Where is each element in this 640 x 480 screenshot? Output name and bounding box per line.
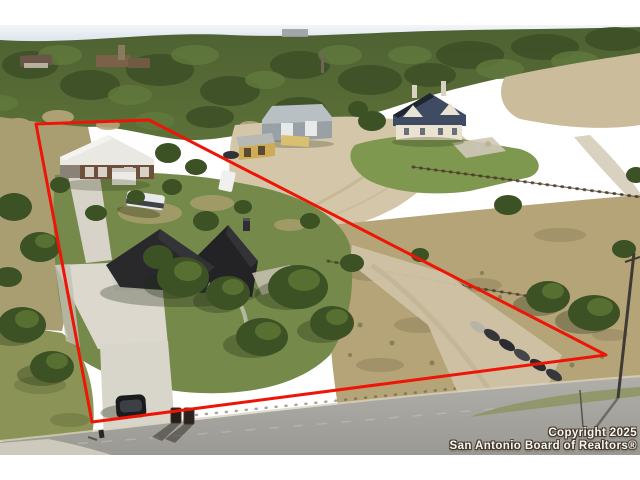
letterbox-top — [0, 0, 640, 25]
letterbox-bottom — [0, 455, 640, 480]
aerial-photo — [0, 25, 640, 455]
watermark-line2: San Antonio Board of Realtors® — [450, 440, 637, 453]
watermark: Copyright 2025 San Antonio Board of Real… — [450, 427, 637, 452]
watermark-line1: Copyright 2025 — [450, 427, 637, 440]
lumber-pile — [281, 135, 310, 147]
screenshot-frame: Copyright 2025 San Antonio Board of Real… — [0, 0, 640, 480]
